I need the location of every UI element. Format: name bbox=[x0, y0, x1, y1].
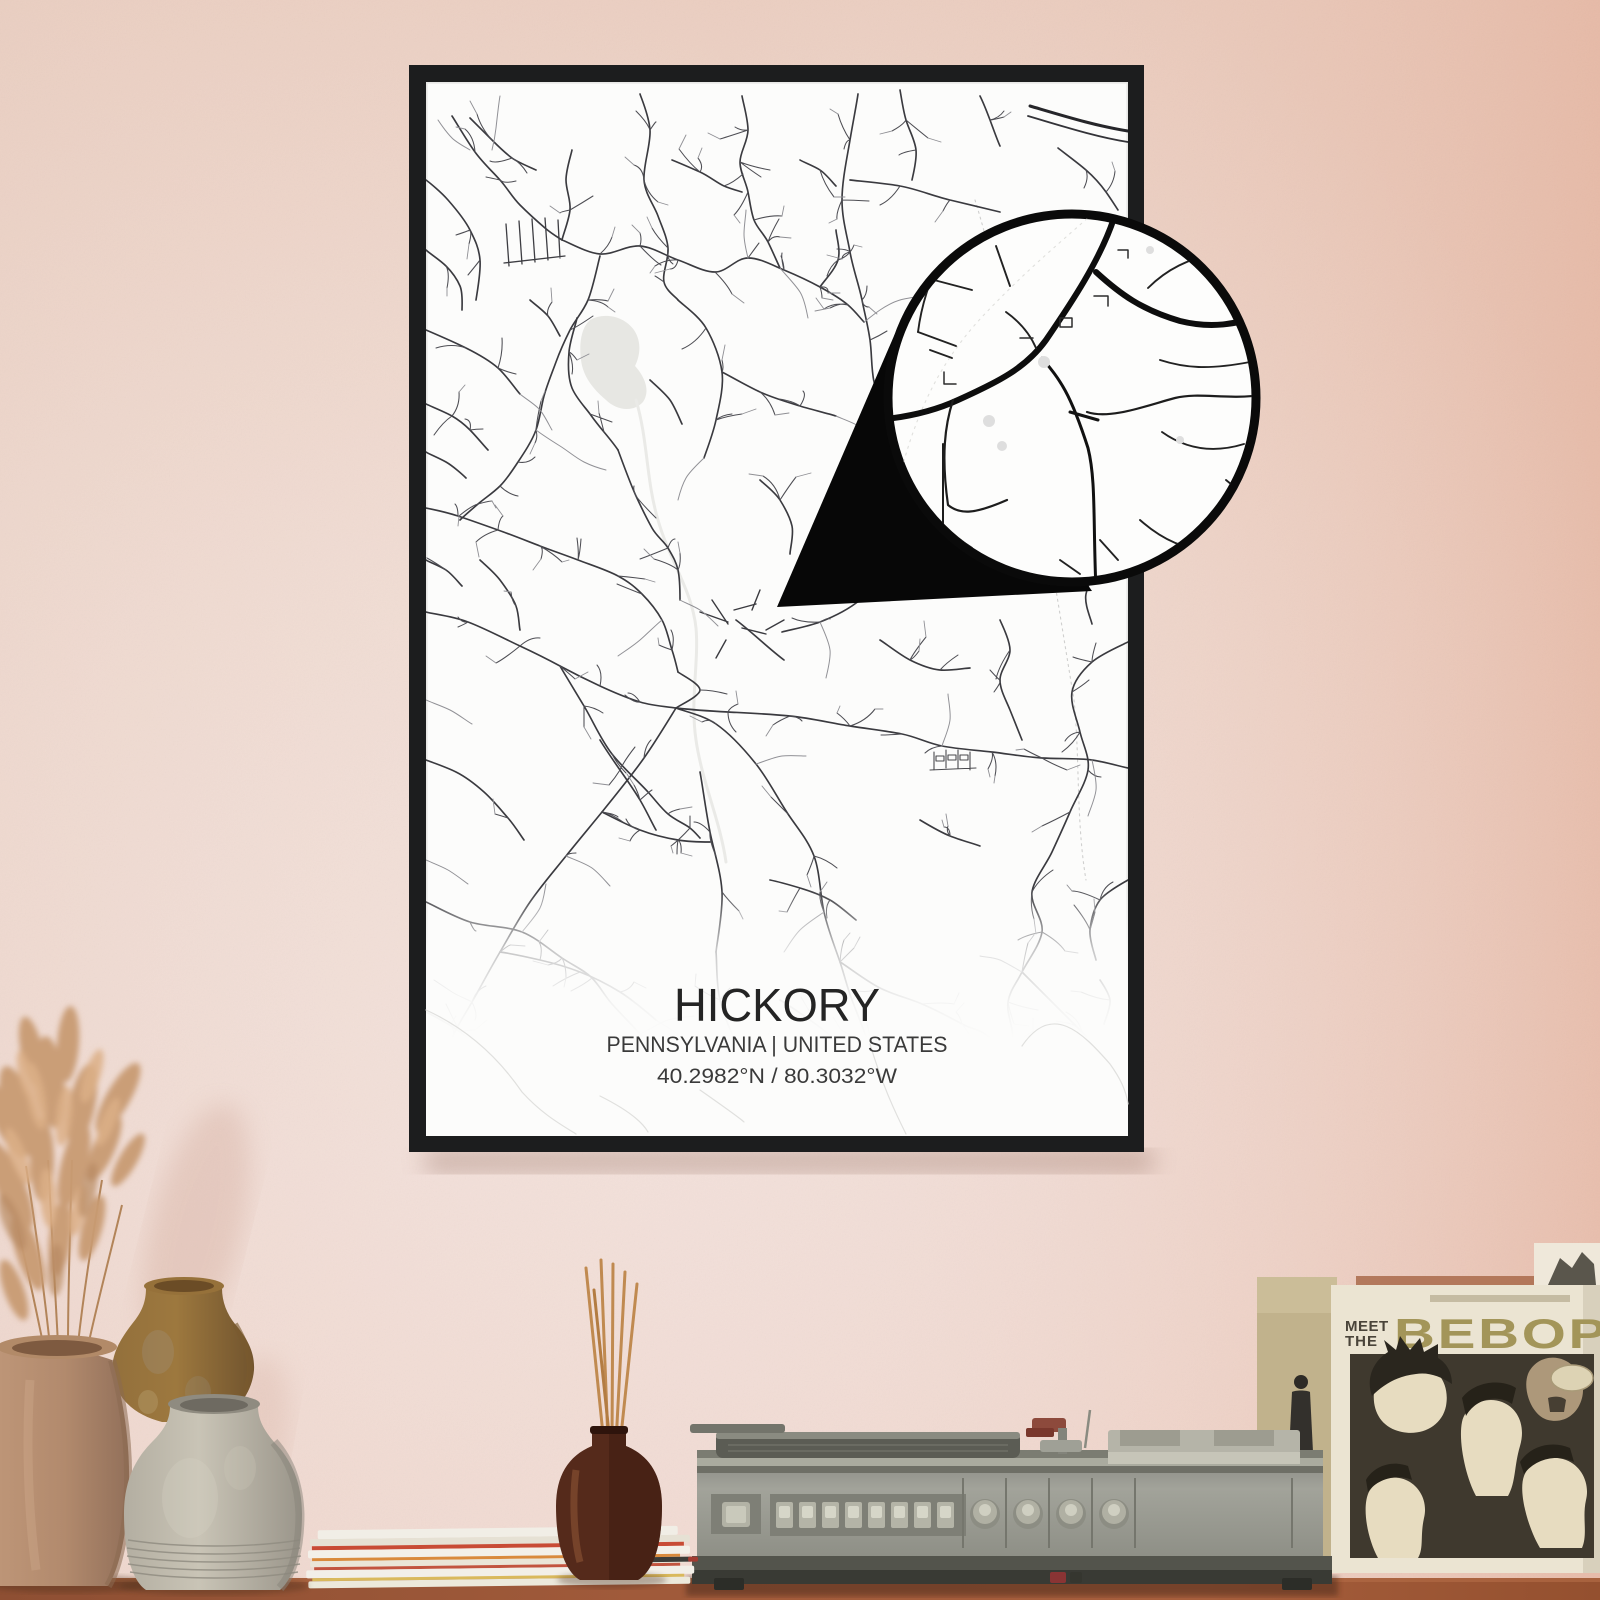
svg-text:40.2982°N / 80.3032°W: 40.2982°N / 80.3032°W bbox=[657, 1065, 897, 1088]
svg-text:BEBOP: BEBOP bbox=[1394, 1310, 1600, 1357]
svg-text:HICKORY: HICKORY bbox=[674, 979, 880, 1031]
svg-text:PENNSYLVANIA | UNITED STATES: PENNSYLVANIA | UNITED STATES bbox=[607, 1032, 948, 1057]
svg-text:THE: THE bbox=[1345, 1333, 1378, 1350]
